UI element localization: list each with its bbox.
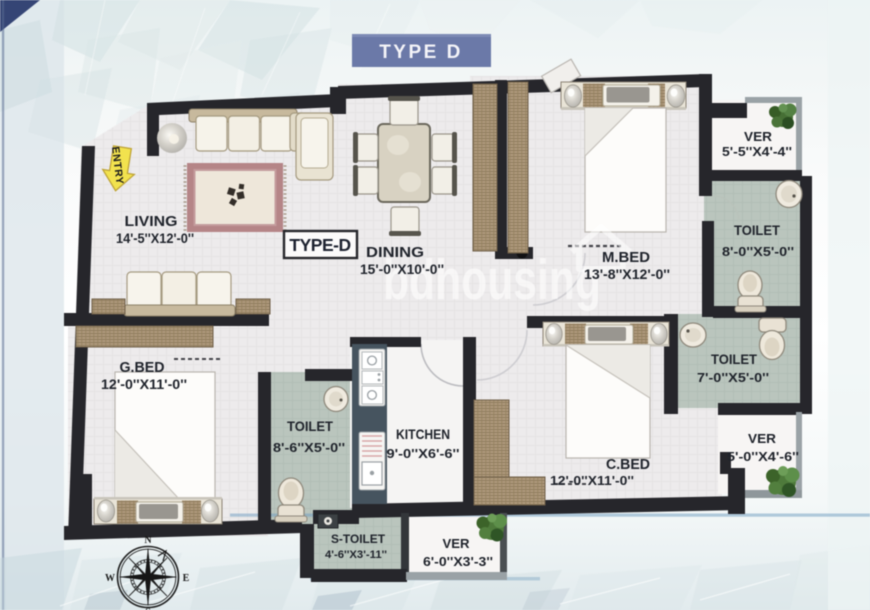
svg-text:N: N <box>144 535 152 546</box>
svg-text:TOILET: TOILET <box>734 223 781 238</box>
svg-text:8'-6''X5'-0'': 8'-6''X5'-0'' <box>273 440 345 455</box>
svg-text:LIVING: LIVING <box>125 214 178 230</box>
svg-text:13'-8''X12'-0'': 13'-8''X12'-0'' <box>584 267 670 282</box>
svg-text:5'-0''X4'-6'': 5'-0''X4'-6'' <box>727 450 799 464</box>
svg-text:8'-0''X5'-0'': 8'-0''X5'-0'' <box>722 244 794 259</box>
svg-text:TOILET: TOILET <box>711 352 758 367</box>
svg-text:VER: VER <box>443 536 471 551</box>
svg-text:9'-0''X6'-6'': 9'-0''X6'-6'' <box>387 446 460 461</box>
svg-text:6'-0''X3'-3'': 6'-0''X3'-3'' <box>423 555 493 569</box>
svg-text:C.BED: C.BED <box>606 457 650 473</box>
svg-text:TOILET: TOILET <box>287 419 334 434</box>
svg-text:4'-6''X3'-11'': 4'-6''X3'-11'' <box>325 549 387 561</box>
svg-text:VER: VER <box>748 431 777 446</box>
svg-text:VER: VER <box>744 129 773 144</box>
svg-text:G.BED: G.BED <box>120 360 165 376</box>
svg-text:12'-0''X11'-0'': 12'-0''X11'-0'' <box>550 473 634 488</box>
svg-text:15'-0''X10'-0'': 15'-0''X10'-0'' <box>360 262 444 277</box>
svg-text:TYPE-D: TYPE-D <box>289 235 350 255</box>
svg-text:W: W <box>105 573 115 584</box>
svg-text:S-TOILET: S-TOILET <box>331 534 385 546</box>
svg-text:KITCHEN: KITCHEN <box>396 427 450 442</box>
svg-text:TYPE D: TYPE D <box>379 42 463 63</box>
svg-text:12'-0''X11'-0'': 12'-0''X11'-0'' <box>101 377 187 392</box>
svg-text:14'-5''X12'-0'': 14'-5''X12'-0'' <box>116 231 194 246</box>
svg-text:DINING: DINING <box>366 245 424 261</box>
svg-text:E: E <box>183 573 190 584</box>
svg-text:M.BED: M.BED <box>602 250 650 266</box>
svg-text:7'-0''X5'-0'': 7'-0''X5'-0'' <box>697 370 769 385</box>
svg-text:5'-5''X4'-4'': 5'-5''X4'-4'' <box>722 145 792 159</box>
